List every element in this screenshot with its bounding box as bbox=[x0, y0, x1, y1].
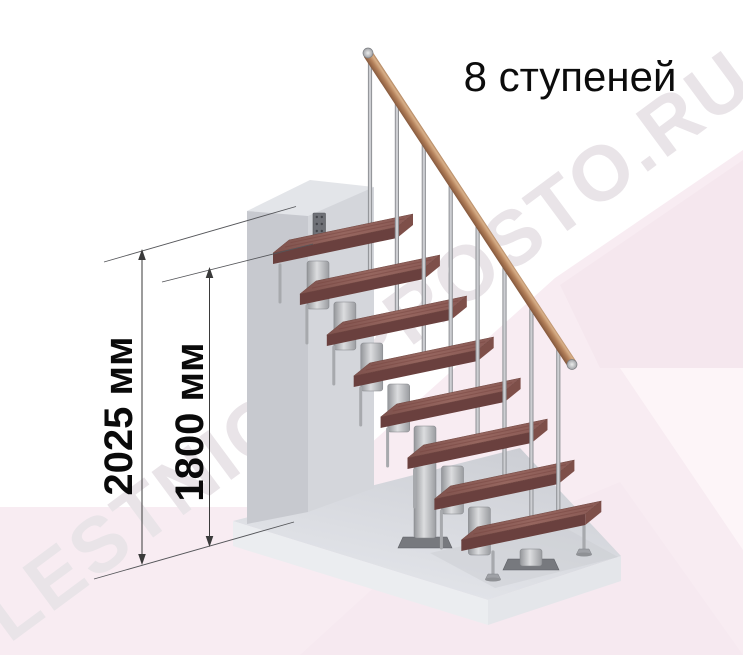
dimension-label-1800: 1800 мм bbox=[168, 342, 212, 501]
wall-mount-plate bbox=[313, 213, 326, 236]
baluster-base-cap bbox=[576, 553, 592, 557]
dimension-label-2025: 2025 мм bbox=[97, 336, 141, 495]
handrail-bottom-cap bbox=[567, 360, 577, 370]
staircase-drawing: LESTNICA-PROSTO.RU bbox=[0, 0, 743, 655]
support-column bbox=[414, 426, 436, 538]
support-column bbox=[520, 549, 542, 566]
column-base-plate bbox=[398, 537, 452, 548]
page-title: 8 ступеней bbox=[464, 53, 677, 100]
handrail-top-cap bbox=[363, 48, 373, 58]
baluster-base-cap bbox=[485, 578, 501, 582]
staircase-illustration: LESTNICA-PROSTO.RU bbox=[0, 0, 743, 655]
